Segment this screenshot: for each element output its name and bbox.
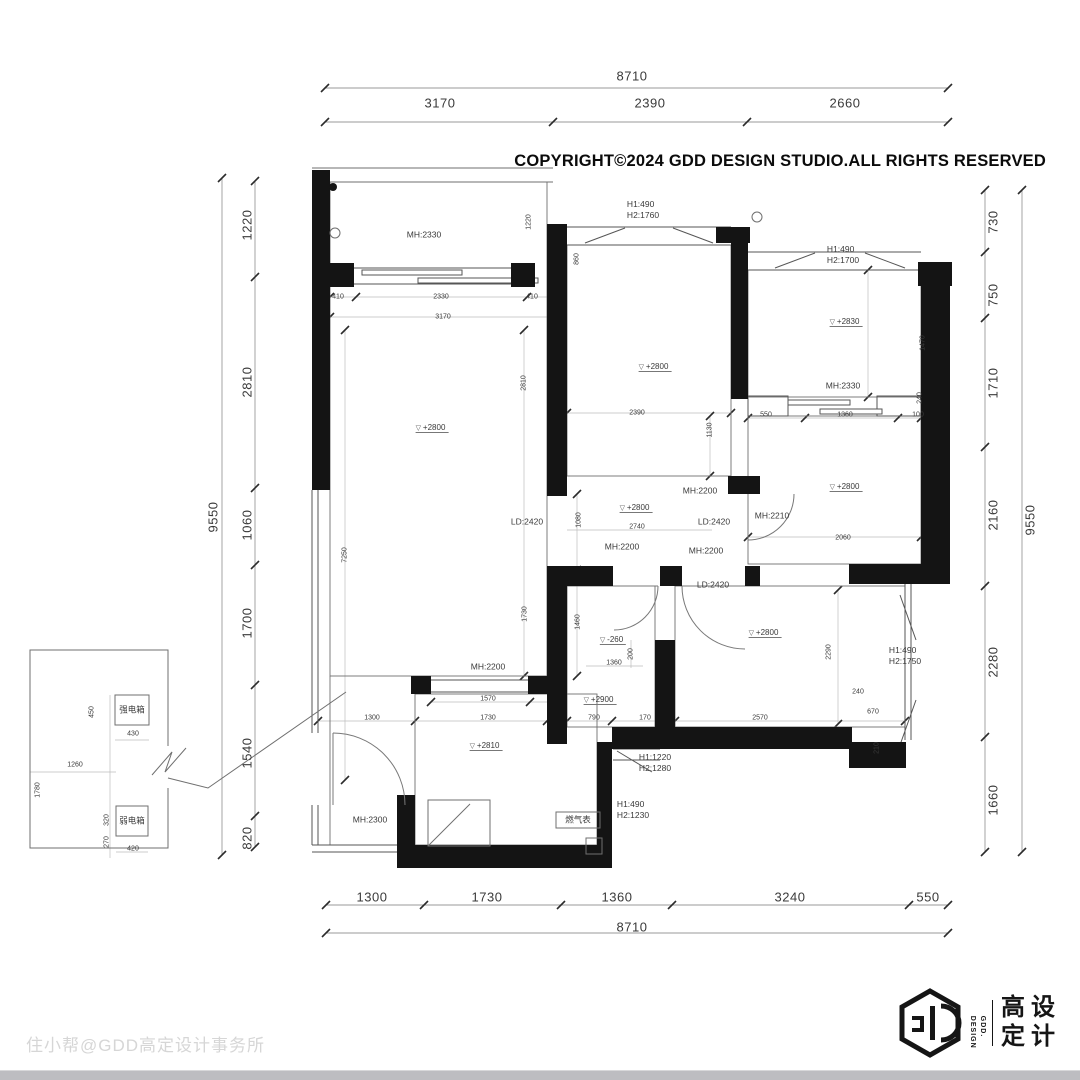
- annotation-label: MH:2300: [353, 814, 388, 825]
- dimension-label: 550: [760, 412, 772, 419]
- dimension-label: 200: [628, 648, 635, 660]
- dimension-label: 860: [574, 253, 581, 265]
- dimension-label: 670: [867, 709, 879, 716]
- dimension-label: 1700: [240, 608, 255, 639]
- dimension-label: 1060: [240, 510, 255, 541]
- copyright-text: COPYRIGHT©2024 GDD DESIGN STUDIO.ALL RIG…: [514, 152, 1046, 171]
- annotation-label: LD:2420: [698, 516, 730, 527]
- annotation-label: H1:490 H2:1230: [617, 799, 649, 821]
- dimension-label: 1220: [240, 210, 255, 241]
- level-mark: -260: [600, 635, 626, 645]
- dimension-label: 430: [127, 731, 139, 738]
- dimension-label: 410: [332, 294, 344, 301]
- dimension-label: 270: [104, 836, 111, 848]
- level-mark: +2800: [830, 482, 863, 492]
- dimension-label: 1540: [240, 738, 255, 769]
- dimension-label: 1220: [526, 214, 533, 230]
- dimension-label: 1570: [480, 696, 496, 703]
- dimension-label: 1460: [575, 614, 582, 630]
- dimension-label: 2810: [240, 367, 255, 398]
- dimension-label: 2570: [752, 715, 768, 722]
- dimension-label: 1730: [480, 715, 496, 722]
- logo-hexagon-icon: [898, 988, 962, 1058]
- dimension-label: 1360: [602, 890, 633, 905]
- dimension-label: 410: [526, 294, 538, 301]
- level-mark: +2810: [470, 741, 503, 751]
- annotation-label: MH:2200: [689, 545, 724, 556]
- dimension-label: 2330: [433, 294, 449, 301]
- studio-logo: GDD. DESIGN 高设 定计: [898, 988, 1061, 1058]
- annotation-label: MH:2200: [605, 541, 640, 552]
- dimension-label: 1660: [986, 785, 1001, 816]
- dimension-label: 1080: [576, 512, 583, 528]
- annotation-label: H1:1220 H2:1280: [639, 752, 671, 774]
- floor-plan-page: 8710317023902660130017301360324055087109…: [0, 0, 1080, 1080]
- dimension-label: 2290: [826, 644, 833, 660]
- dimension-label: 1730: [472, 890, 503, 905]
- dimension-label: 550: [916, 890, 939, 905]
- dimension-label: 8710: [617, 69, 648, 84]
- dimension-label: 790: [588, 715, 600, 722]
- dimension-label: 170: [639, 715, 651, 722]
- annotation-label: MH:2200: [683, 485, 718, 496]
- dimension-label: 1130: [707, 422, 714, 437]
- logo-en-line2: DESIGN: [967, 1016, 977, 1030]
- level-mark: +2800: [749, 628, 782, 638]
- annotation-label: MH:2330: [407, 229, 442, 240]
- dimension-label: 2390: [629, 410, 645, 417]
- leader-line: [168, 692, 346, 788]
- dimension-label: 3240: [775, 890, 806, 905]
- level-mark: +2900: [584, 695, 617, 705]
- level-mark: +2800: [639, 362, 672, 372]
- logo-divider: [992, 1000, 993, 1046]
- dimension-label: 1360: [606, 660, 622, 667]
- logo-en-text: GDD. DESIGN: [967, 1016, 987, 1030]
- logo-cn-line2: 定计: [1001, 1023, 1061, 1052]
- dimension-label: 730: [986, 210, 1001, 233]
- dimension-label: 9550: [206, 502, 221, 533]
- dimension-label: 2060: [835, 535, 851, 542]
- watermark-text: 住小帮@GDD高定设计事务所: [26, 1031, 265, 1056]
- dimension-label: 1300: [357, 890, 388, 905]
- dimension-label: 2740: [629, 524, 645, 531]
- electrical-detail-box: [30, 650, 168, 848]
- annotation-label: 弱电箱: [119, 815, 145, 826]
- annotation-label: H1:490 H2:1700: [827, 244, 859, 266]
- dimension-label: 1730: [522, 606, 529, 622]
- dimension-label: 1260: [67, 762, 83, 769]
- annotation-label: 强电箱: [119, 704, 145, 715]
- dimension-label: 1710: [986, 368, 1001, 399]
- annotation-label: LD:2420: [511, 516, 543, 527]
- dimension-label: 8710: [617, 920, 648, 935]
- dimension-label: 3170: [425, 96, 456, 111]
- dimension-label: 2810: [521, 375, 528, 391]
- dimension-label: 1360: [837, 412, 853, 419]
- annotation-label: H1:490 H2:1760: [627, 199, 659, 221]
- logo-cn-text: 高设 定计: [1001, 994, 1061, 1052]
- annotation-label: MH:2210: [755, 510, 790, 521]
- dimension-label: 2160: [986, 500, 1001, 531]
- dimension-label: 9550: [1023, 505, 1038, 536]
- dimension-label: 1780: [35, 782, 42, 798]
- annotation-label: LD:2420: [697, 579, 729, 590]
- dimension-label: 450: [89, 706, 96, 718]
- dimension-label: 240: [852, 689, 864, 696]
- annotation-label: MH:2330: [826, 380, 861, 391]
- dimension-label: 1470: [920, 335, 927, 351]
- dimension-label: 240: [917, 392, 924, 404]
- dimension-label: 2390: [635, 96, 666, 111]
- logo-cn-line1: 高设: [1001, 994, 1061, 1023]
- dimension-label: 320: [104, 814, 111, 826]
- level-mark: +2800: [620, 503, 653, 513]
- dimension-label: 7250: [342, 547, 349, 563]
- bottom-gray-bar: [0, 1070, 1080, 1080]
- annotation-label: MH:2200: [471, 661, 506, 672]
- dimension-label: 750: [986, 283, 1001, 306]
- dimension-label: 820: [240, 826, 255, 849]
- logo-en-line1: GDD.: [977, 1016, 987, 1030]
- dimension-label: 2280: [986, 647, 1001, 678]
- dimension-label: 420: [127, 846, 139, 853]
- dimension-label: 2660: [830, 96, 861, 111]
- annotation-label: H1:490 H2:1750: [889, 645, 921, 667]
- level-mark: +2800: [416, 423, 449, 433]
- annotation-label: 燃气表: [565, 814, 591, 825]
- dimension-label: 1300: [364, 715, 380, 722]
- level-mark: +2830: [830, 317, 863, 327]
- dimension-label: 3170: [435, 314, 451, 321]
- dimension-label: 100: [912, 412, 924, 419]
- dimension-label: 210: [874, 742, 881, 754]
